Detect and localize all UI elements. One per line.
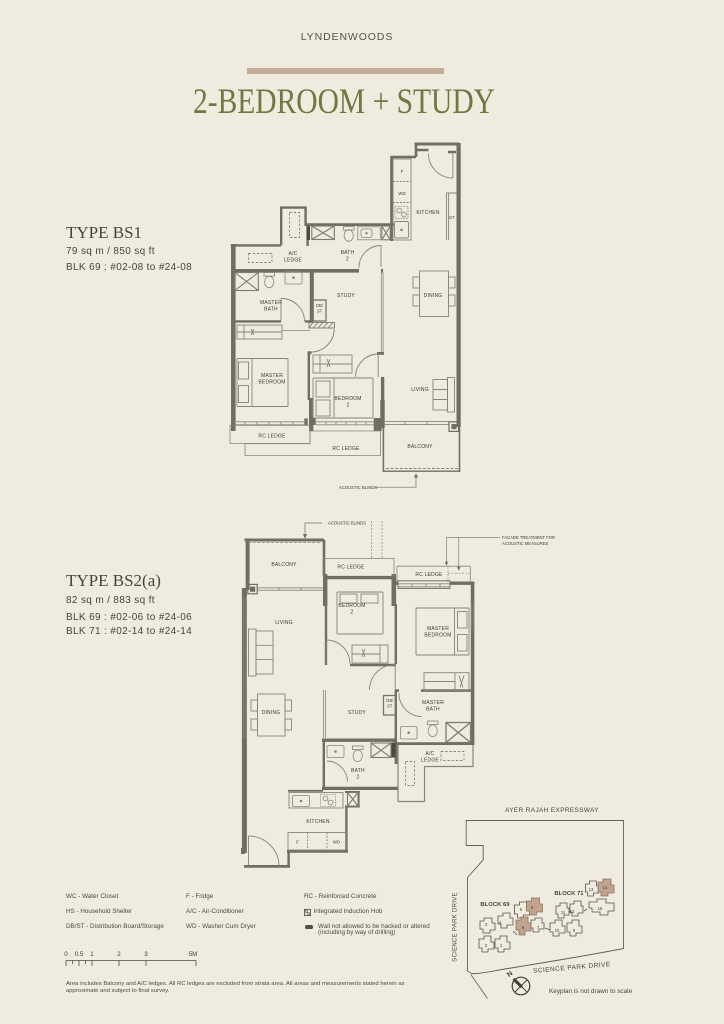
svg-text:ACOUSTIC BLINDS: ACOUSTIC BLINDS bbox=[328, 521, 366, 526]
svg-text:A/C: A/C bbox=[426, 751, 435, 757]
svg-text:DINING: DINING bbox=[424, 293, 443, 299]
svg-text:5M: 5M bbox=[189, 951, 198, 958]
svg-text:DB/: DB/ bbox=[386, 698, 394, 703]
svg-text:ACOUSTIC BLINDS: ACOUSTIC BLINDS bbox=[339, 485, 377, 490]
svg-text:KITCHEN: KITCHEN bbox=[416, 210, 440, 216]
svg-text:RC LEDGE: RC LEDGE bbox=[258, 434, 286, 440]
svg-text:BEDROOM: BEDROOM bbox=[424, 633, 451, 639]
svg-text:FACADE TREATMENT FOR: FACADE TREATMENT FOR bbox=[502, 535, 555, 540]
svg-text:ST: ST bbox=[317, 309, 323, 314]
svg-text:LIVING: LIVING bbox=[411, 387, 429, 393]
svg-text:10: 10 bbox=[555, 928, 560, 933]
svg-text:RC LEDGE: RC LEDGE bbox=[332, 446, 360, 452]
svg-text:RC LEDGE: RC LEDGE bbox=[337, 565, 365, 571]
svg-text:AYER RAJAH EXPRESSWAY: AYER RAJAH EXPRESSWAY bbox=[505, 807, 599, 814]
svg-text:BALCONY: BALCONY bbox=[271, 562, 297, 568]
svg-text:0.5: 0.5 bbox=[75, 951, 84, 958]
svg-text:LEDGE: LEDGE bbox=[284, 258, 302, 264]
svg-text:BEDROOM: BEDROOM bbox=[334, 396, 361, 402]
svg-text:MASTER: MASTER bbox=[260, 300, 282, 306]
svg-text:A/C: A/C bbox=[289, 251, 298, 257]
svg-text:2: 2 bbox=[485, 943, 488, 948]
svg-text:9: 9 bbox=[573, 928, 576, 933]
svg-text:ST: ST bbox=[449, 215, 455, 220]
svg-text:1: 1 bbox=[500, 943, 503, 948]
svg-text:16: 16 bbox=[598, 906, 603, 911]
svg-text:3: 3 bbox=[144, 951, 148, 958]
svg-text:2: 2 bbox=[357, 775, 360, 781]
svg-text:F: F bbox=[296, 840, 299, 845]
svg-text:2: 2 bbox=[351, 610, 354, 616]
svg-text:BALCONY: BALCONY bbox=[407, 444, 433, 450]
svg-text:MASTER: MASTER bbox=[422, 700, 444, 706]
svg-text:DB/: DB/ bbox=[316, 303, 324, 308]
svg-text:2: 2 bbox=[347, 403, 350, 409]
svg-text:3: 3 bbox=[485, 922, 488, 927]
svg-text:BATH: BATH bbox=[351, 768, 365, 774]
svg-text:MASTER: MASTER bbox=[427, 626, 449, 632]
svg-text:ACOUSTIC MEASURES: ACOUSTIC MEASURES bbox=[502, 541, 549, 546]
svg-text:SCIENCE PARK DRIVE: SCIENCE PARK DRIVE bbox=[533, 961, 611, 975]
svg-text:12: 12 bbox=[570, 909, 575, 914]
svg-text:5: 5 bbox=[520, 907, 523, 912]
svg-text:LIVING: LIVING bbox=[275, 620, 293, 626]
svg-text:WD: WD bbox=[398, 191, 405, 196]
svg-text:F: F bbox=[401, 169, 404, 174]
svg-text:13: 13 bbox=[589, 887, 594, 892]
svg-text:SCIENCE PARK DRIVE: SCIENCE PARK DRIVE bbox=[453, 892, 459, 962]
svg-text:KITCHEN: KITCHEN bbox=[306, 819, 330, 825]
svg-text:ST: ST bbox=[387, 704, 393, 709]
svg-text:STUDY: STUDY bbox=[348, 710, 366, 716]
svg-text:N: N bbox=[506, 970, 514, 979]
svg-text:WD: WD bbox=[333, 840, 340, 845]
svg-text:11: 11 bbox=[561, 910, 566, 915]
svg-text:STUDY: STUDY bbox=[337, 293, 355, 299]
svg-text:BLOCK 71: BLOCK 71 bbox=[554, 891, 584, 897]
svg-text:BATH: BATH bbox=[426, 707, 440, 713]
svg-text:2: 2 bbox=[346, 257, 349, 263]
svg-text:2: 2 bbox=[117, 951, 121, 958]
svg-text:14: 14 bbox=[603, 885, 608, 890]
svg-text:BEDROOM: BEDROOM bbox=[258, 380, 285, 386]
svg-text:BLOCK 69: BLOCK 69 bbox=[480, 902, 510, 908]
svg-text:BATH: BATH bbox=[341, 250, 355, 256]
svg-text:1: 1 bbox=[90, 951, 94, 958]
svg-text:0: 0 bbox=[64, 951, 68, 958]
svg-text:RC LEDGE: RC LEDGE bbox=[415, 572, 443, 578]
svg-text:MASTER: MASTER bbox=[261, 373, 283, 379]
svg-text:Keyplan is not drawn to scale: Keyplan is not drawn to scale bbox=[549, 988, 633, 995]
svg-text:DINING: DINING bbox=[262, 710, 281, 716]
svg-text:BATH: BATH bbox=[264, 307, 278, 313]
svg-text:LEDGE: LEDGE bbox=[421, 758, 439, 764]
svg-text:BEDROOM: BEDROOM bbox=[338, 603, 365, 609]
